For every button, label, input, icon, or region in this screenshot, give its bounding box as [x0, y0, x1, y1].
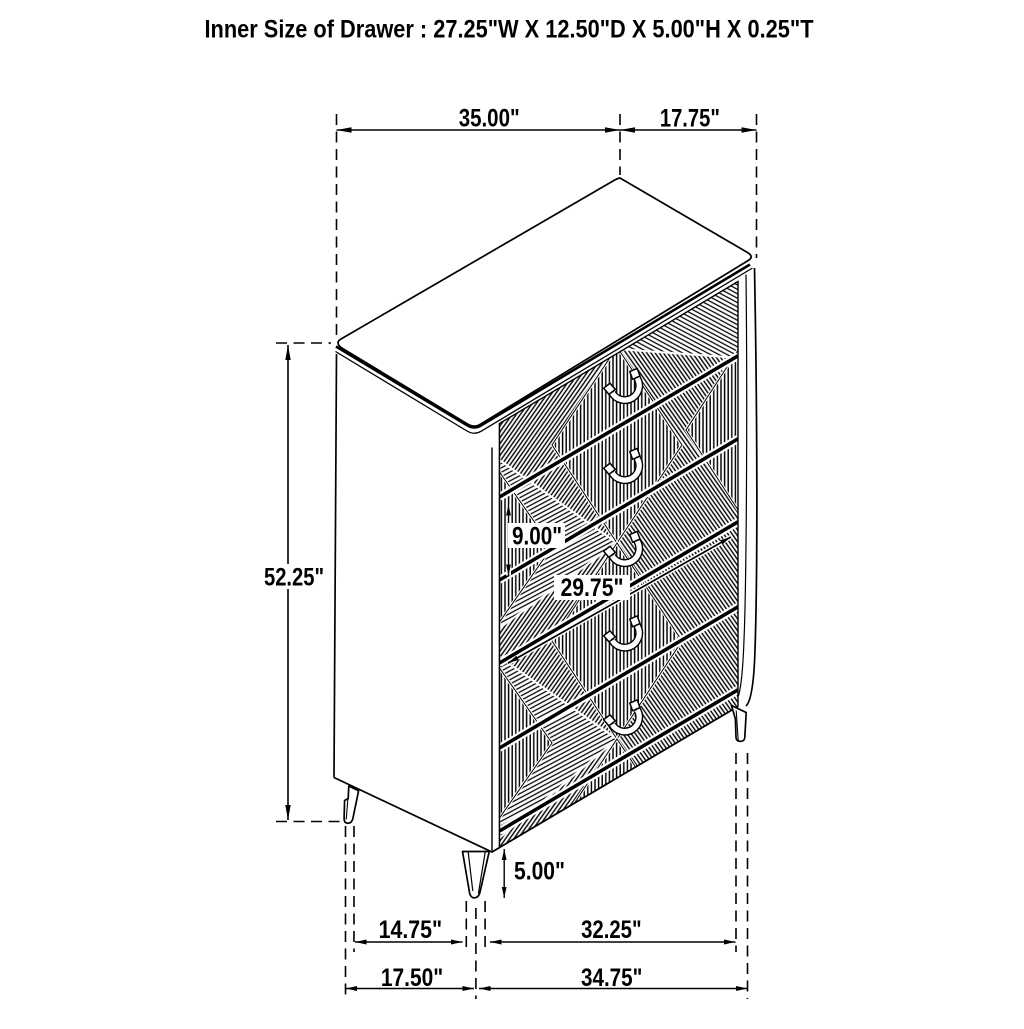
- svg-text:17.50": 17.50": [381, 964, 443, 992]
- svg-text:34.75": 34.75": [581, 964, 642, 992]
- svg-text:5.00": 5.00": [514, 858, 565, 886]
- svg-text:35.00": 35.00": [459, 105, 520, 133]
- svg-text:17.75": 17.75": [660, 105, 720, 133]
- svg-text:9.00": 9.00": [512, 523, 562, 551]
- svg-text:14.75": 14.75": [379, 916, 443, 944]
- svg-text:32.25": 32.25": [581, 916, 642, 944]
- svg-text:Inner Size of Drawer : 27.25"W: Inner Size of Drawer : 27.25"W X 12.50"D…: [205, 16, 814, 44]
- svg-text:52.25": 52.25": [264, 564, 324, 592]
- svg-text:29.75": 29.75": [561, 574, 624, 602]
